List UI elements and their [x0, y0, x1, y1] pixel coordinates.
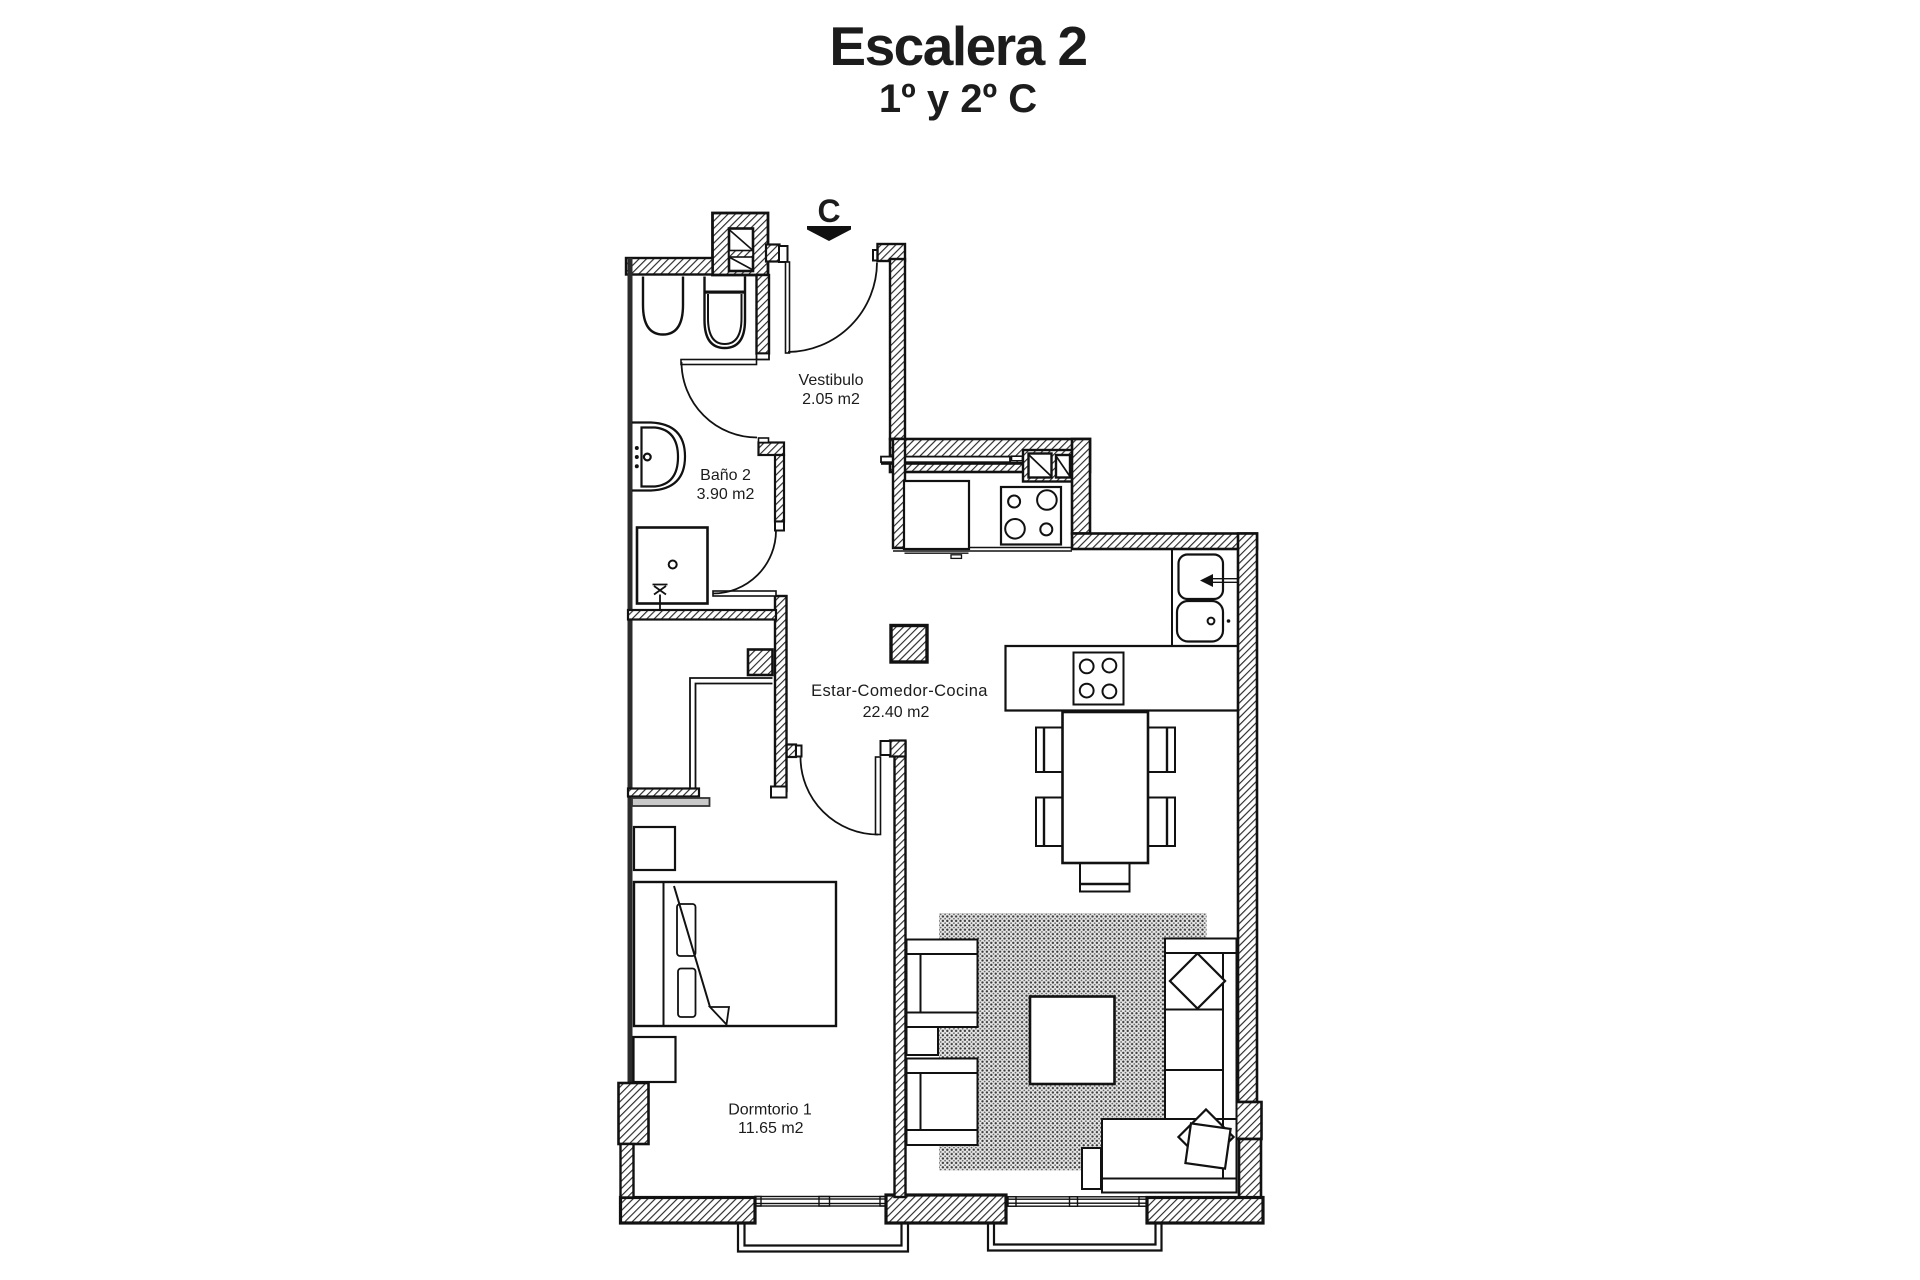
- svg-text:3.90 m2: 3.90 m2: [697, 486, 755, 503]
- svg-text:Baño 2: Baño 2: [700, 467, 751, 484]
- svg-text:C: C: [817, 193, 840, 229]
- svg-text:11.65 m2: 11.65 m2: [738, 1120, 804, 1137]
- svg-text:Escalera 2: Escalera 2: [829, 15, 1086, 77]
- svg-text:Dormtorio 1: Dormtorio 1: [728, 1102, 812, 1119]
- svg-text:Estar-Comedor-Cocina: Estar-Comedor-Cocina: [811, 682, 988, 700]
- svg-text:22.40 m2: 22.40 m2: [863, 704, 930, 721]
- svg-text:2.05 m2: 2.05 m2: [802, 391, 860, 408]
- svg-text:Vestibulo: Vestibulo: [799, 372, 864, 389]
- svg-text:1º y 2º C: 1º y 2º C: [879, 77, 1037, 121]
